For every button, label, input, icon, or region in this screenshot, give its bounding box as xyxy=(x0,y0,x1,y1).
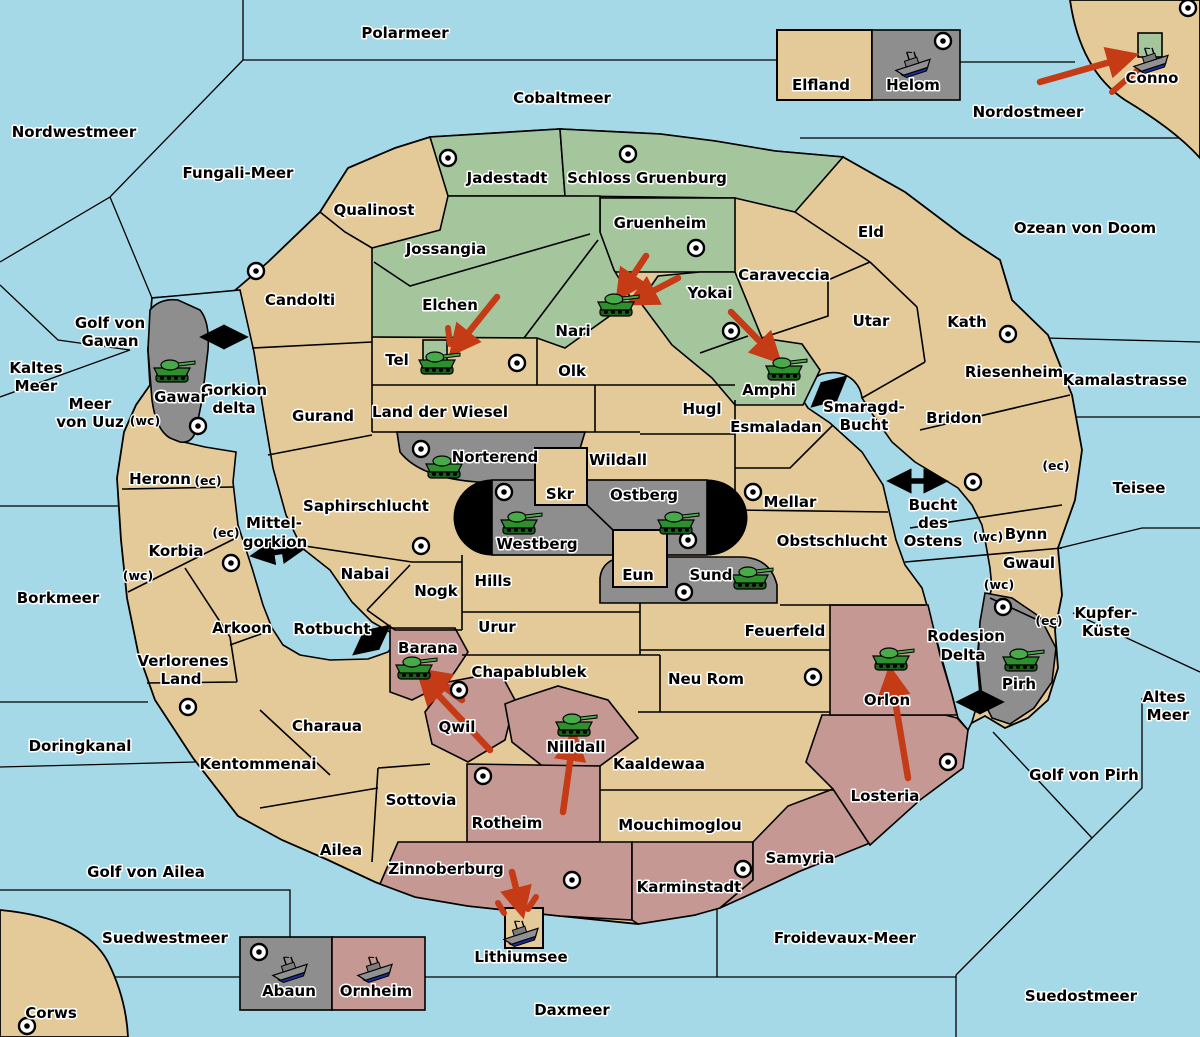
sea-label-doringkanal: Doringkanal xyxy=(29,737,132,755)
sea-label-meer-von-uuz-1: Meer xyxy=(69,395,112,413)
sea-label-kaltes-meer-1: Kaltes xyxy=(9,359,62,377)
coast-mark-korbia-ec: (ec) xyxy=(212,525,239,540)
sea-label-smaragd-bucht-1: Smaragd- xyxy=(823,398,905,416)
sea-label-altes-meer-1: Altes xyxy=(1142,688,1185,706)
sea-label-rodesion-delta-1: Rodesion xyxy=(927,627,1005,645)
territory-label-sund: Sund xyxy=(690,566,733,584)
territory-label-eld: Eld xyxy=(858,223,884,241)
game-map[interactable]: Polarmeer Cobaltmeer Nordostmeer Nordwes… xyxy=(0,0,1200,1037)
territory-label-nilldall: Nilldall xyxy=(546,738,605,756)
coast-mark-gwaul-ec: (ec) xyxy=(1035,613,1062,628)
territory-label-losteria: Losteria xyxy=(851,787,920,805)
sea-label-suedostmeer: Suedostmeer xyxy=(1025,987,1138,1005)
sea-label-kupfer-kueste-1: Kupfer- xyxy=(1074,604,1137,622)
territory-label-ailea: Ailea xyxy=(320,841,362,859)
sea-label-rodesion-delta-2: Delta xyxy=(940,646,985,664)
territory-label-olk: Olk xyxy=(558,362,587,380)
territory-label-jossangia: Jossangia xyxy=(405,240,487,258)
territory-label-verlorenes-land-1: Verlorenes xyxy=(137,652,228,670)
sea-label-golf-von-pirh: Golf von Pirh xyxy=(1029,766,1139,784)
sea-label-corws: Corws xyxy=(25,1004,77,1022)
territory-label-conno: Conno xyxy=(1126,69,1179,87)
sea-label-gorkion-delta-2: delta xyxy=(212,399,255,417)
sea-label-rotbucht: Rotbucht xyxy=(293,620,370,638)
territory-label-qualinost: Qualinost xyxy=(334,201,415,219)
territory-label-riesenheim: Riesenheim xyxy=(965,363,1063,381)
territory-label-orlon: Orlon xyxy=(864,691,910,709)
territory-label-arkoon: Arkoon xyxy=(212,619,272,637)
territory-label-elfland: Elfland xyxy=(792,76,850,94)
sea-label-borkmeer: Borkmeer xyxy=(17,589,100,607)
territory-label-land-der-wiesel: Land der Wiesel xyxy=(372,403,508,421)
territory-label-schloss-gruenburg: Schloss Gruenburg xyxy=(567,169,727,187)
territory-label-urur: Urur xyxy=(478,618,516,636)
territory-label-ornheim: Ornheim xyxy=(340,982,412,1000)
sea-label-bucht-des-ostens-3: Ostens xyxy=(904,532,963,550)
territory-label-candolti: Candolti xyxy=(265,291,335,309)
territory-label-abaun: Abaun xyxy=(262,982,316,1000)
territory-gruenheim[interactable] xyxy=(600,198,735,272)
territory-label-amphi: Amphi xyxy=(742,381,796,399)
territory-label-esmaladan: Esmaladan xyxy=(730,418,822,436)
territory-label-mouchimoglou: Mouchimoglou xyxy=(618,816,741,834)
territory-label-elchen: Elchen xyxy=(422,296,478,314)
sea-label-kamalastrasse: Kamalastrasse xyxy=(1063,371,1187,389)
territory-label-kaaldewaa: Kaaldewaa xyxy=(613,755,705,773)
territory-label-zinnoberburg: Zinnoberburg xyxy=(388,860,504,878)
territory-label-mellar: Mellar xyxy=(764,493,818,511)
territory-conno-box[interactable] xyxy=(1138,33,1162,57)
sea-label-mittel-gorkion-1: Mittel- xyxy=(246,514,302,532)
coast-mark-meer-von-uuz-wc: (wc) xyxy=(130,413,160,428)
sea-label-kupfer-kueste-2: Küste xyxy=(1082,622,1130,640)
territory-label-pirh: Pirh xyxy=(1002,675,1036,693)
sea-label-daxmeer: Daxmeer xyxy=(534,1001,610,1019)
sea-label-golf-von-gawan-2: Gawan xyxy=(81,332,138,350)
sea-label-meer-von-uuz-2: von Uuz xyxy=(56,413,124,431)
sea-label-lithiumsee: Lithiumsee xyxy=(474,948,567,966)
sea-label-kaltes-meer-2: Meer xyxy=(15,377,58,395)
territory-label-helom: Helom xyxy=(886,76,940,94)
territory-label-ostberg: Ostberg xyxy=(610,486,678,504)
sea-label-mittel-gorkion-2: gorkion xyxy=(243,533,308,551)
territory-label-utar: Utar xyxy=(853,312,890,330)
territory-label-gawar: Gawar xyxy=(154,388,208,406)
territory-label-hugl: Hugl xyxy=(682,400,721,418)
sea-label-bucht-des-ostens-1: Bucht xyxy=(909,496,958,514)
territory-label-westberg: Westberg xyxy=(496,535,577,553)
sea-label-gorkion-delta-1: Gorkion xyxy=(201,381,267,399)
territory-label-nogk: Nogk xyxy=(414,582,459,600)
territory-label-gwaul: Gwaul xyxy=(1003,554,1055,572)
territory-label-chapablublek: Chapablublek xyxy=(471,663,587,681)
territory-label-skr: Skr xyxy=(546,485,575,503)
territory-label-korbia: Korbia xyxy=(148,542,203,560)
territory-label-verlorenes-land-2: Land xyxy=(160,670,201,688)
territory-label-rotheim: Rotheim xyxy=(472,814,543,832)
coast-mark-bynn-wc: (wc) xyxy=(973,529,1003,544)
territory-label-wildall: Wildall xyxy=(589,451,647,469)
territory-label-kath: Kath xyxy=(947,313,987,331)
sea-label-cobaltmeer: Cobaltmeer xyxy=(513,89,611,107)
coast-mark-heronn-ec: (ec) xyxy=(194,473,221,488)
sea-label-bucht-des-ostens-2: des xyxy=(918,514,948,532)
territory-label-gruenheim: Gruenheim xyxy=(614,214,707,232)
territory-label-karminstadt: Karminstadt xyxy=(637,878,742,896)
territory-label-jadestadt: Jadestadt xyxy=(466,169,548,187)
territory-label-sottovia: Sottovia xyxy=(386,791,457,809)
territory-label-charaua: Charaua xyxy=(292,717,362,735)
sea-label-froidevaux-meer: Froidevaux-Meer xyxy=(774,929,917,947)
territory-label-obstschlucht: Obstschlucht xyxy=(777,532,888,550)
territory-label-nari: Nari xyxy=(555,322,590,340)
sea-label-polarmeer: Polarmeer xyxy=(361,24,449,42)
territory-label-hills: Hills xyxy=(475,572,512,590)
territory-label-yokai: Yokai xyxy=(686,284,732,302)
territory-label-bynn: Bynn xyxy=(1005,525,1048,543)
sea-label-altes-meer-2: Meer xyxy=(1147,706,1190,724)
territory-label-tel: Tel xyxy=(385,351,409,369)
territory-label-kentommenai: Kentommenai xyxy=(199,755,316,773)
coast-mark-gwaul-wc: (wc) xyxy=(984,577,1014,592)
sea-label-ozean-von-doom: Ozean von Doom xyxy=(1014,219,1156,237)
territory-label-nabai: Nabai xyxy=(341,565,390,583)
territory-label-saphirschlucht: Saphirschlucht xyxy=(303,497,429,515)
territory-label-gurand: Gurand xyxy=(292,407,354,425)
territory-label-samyria: Samyria xyxy=(766,849,835,867)
sea-label-smaragd-bucht-2: Bucht xyxy=(840,416,889,434)
game-map-stage: Polarmeer Cobaltmeer Nordostmeer Nordwes… xyxy=(0,0,1200,1037)
territory-label-bridon: Bridon xyxy=(926,409,982,427)
sea-label-fungali-meer: Fungali-Meer xyxy=(183,164,294,182)
territory-label-barana: Barana xyxy=(398,639,458,657)
territory-label-eun: Eun xyxy=(622,566,654,584)
sea-label-suedwestmeer: Suedwestmeer xyxy=(102,929,228,947)
territory-label-neu-rom: Neu Rom xyxy=(668,670,744,688)
sea-label-golf-von-gawan-1: Golf von xyxy=(75,314,145,332)
sea-label-nordwestmeer: Nordwestmeer xyxy=(12,123,137,141)
territory-label-heronn: Heronn xyxy=(129,470,191,488)
sea-label-nordostmeer: Nordostmeer xyxy=(973,103,1084,121)
coast-mark-korbia-wc: (wc) xyxy=(123,568,153,583)
territory-label-feuerfeld: Feuerfeld xyxy=(745,622,826,640)
territory-label-norterend: Norterend xyxy=(452,448,539,466)
territory-label-qwil: Qwil xyxy=(439,718,476,736)
coast-mark-bridon-ec: (ec) xyxy=(1042,458,1069,473)
sea-label-teisee: Teisee xyxy=(1113,479,1166,497)
sea-label-golf-von-ailea: Golf von Ailea xyxy=(87,863,205,881)
territory-label-caraveccia: Caraveccia xyxy=(738,266,830,284)
